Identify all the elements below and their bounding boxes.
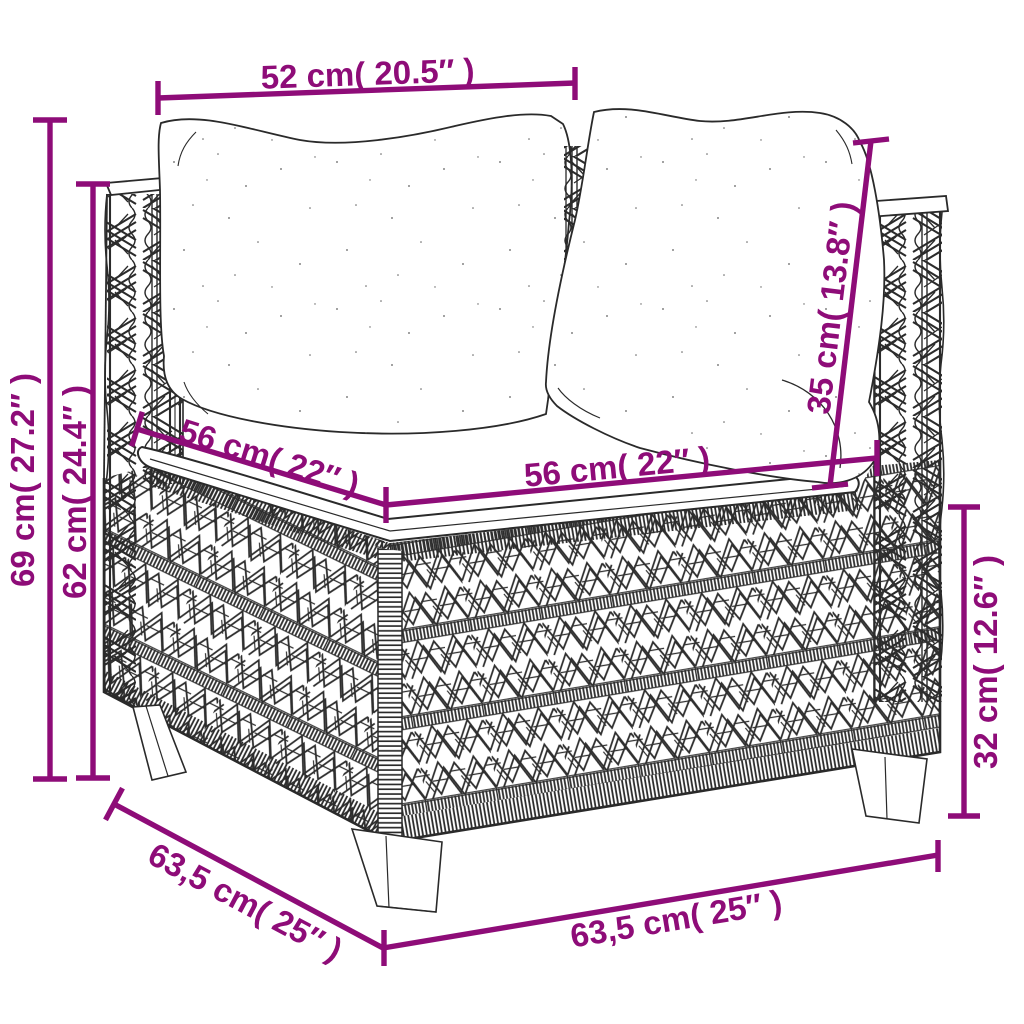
svg-text:32 cm( 12.6″ ): 32 cm( 12.6″ ) [967, 555, 1004, 769]
svg-text:52 cm( 20.5″ ): 52 cm( 20.5″ ) [260, 51, 475, 95]
svg-text:69 cm( 27.2″ ): 69 cm( 27.2″ ) [4, 373, 41, 587]
svg-text:62 cm( 24.4″ ): 62 cm( 24.4″ ) [56, 385, 93, 599]
